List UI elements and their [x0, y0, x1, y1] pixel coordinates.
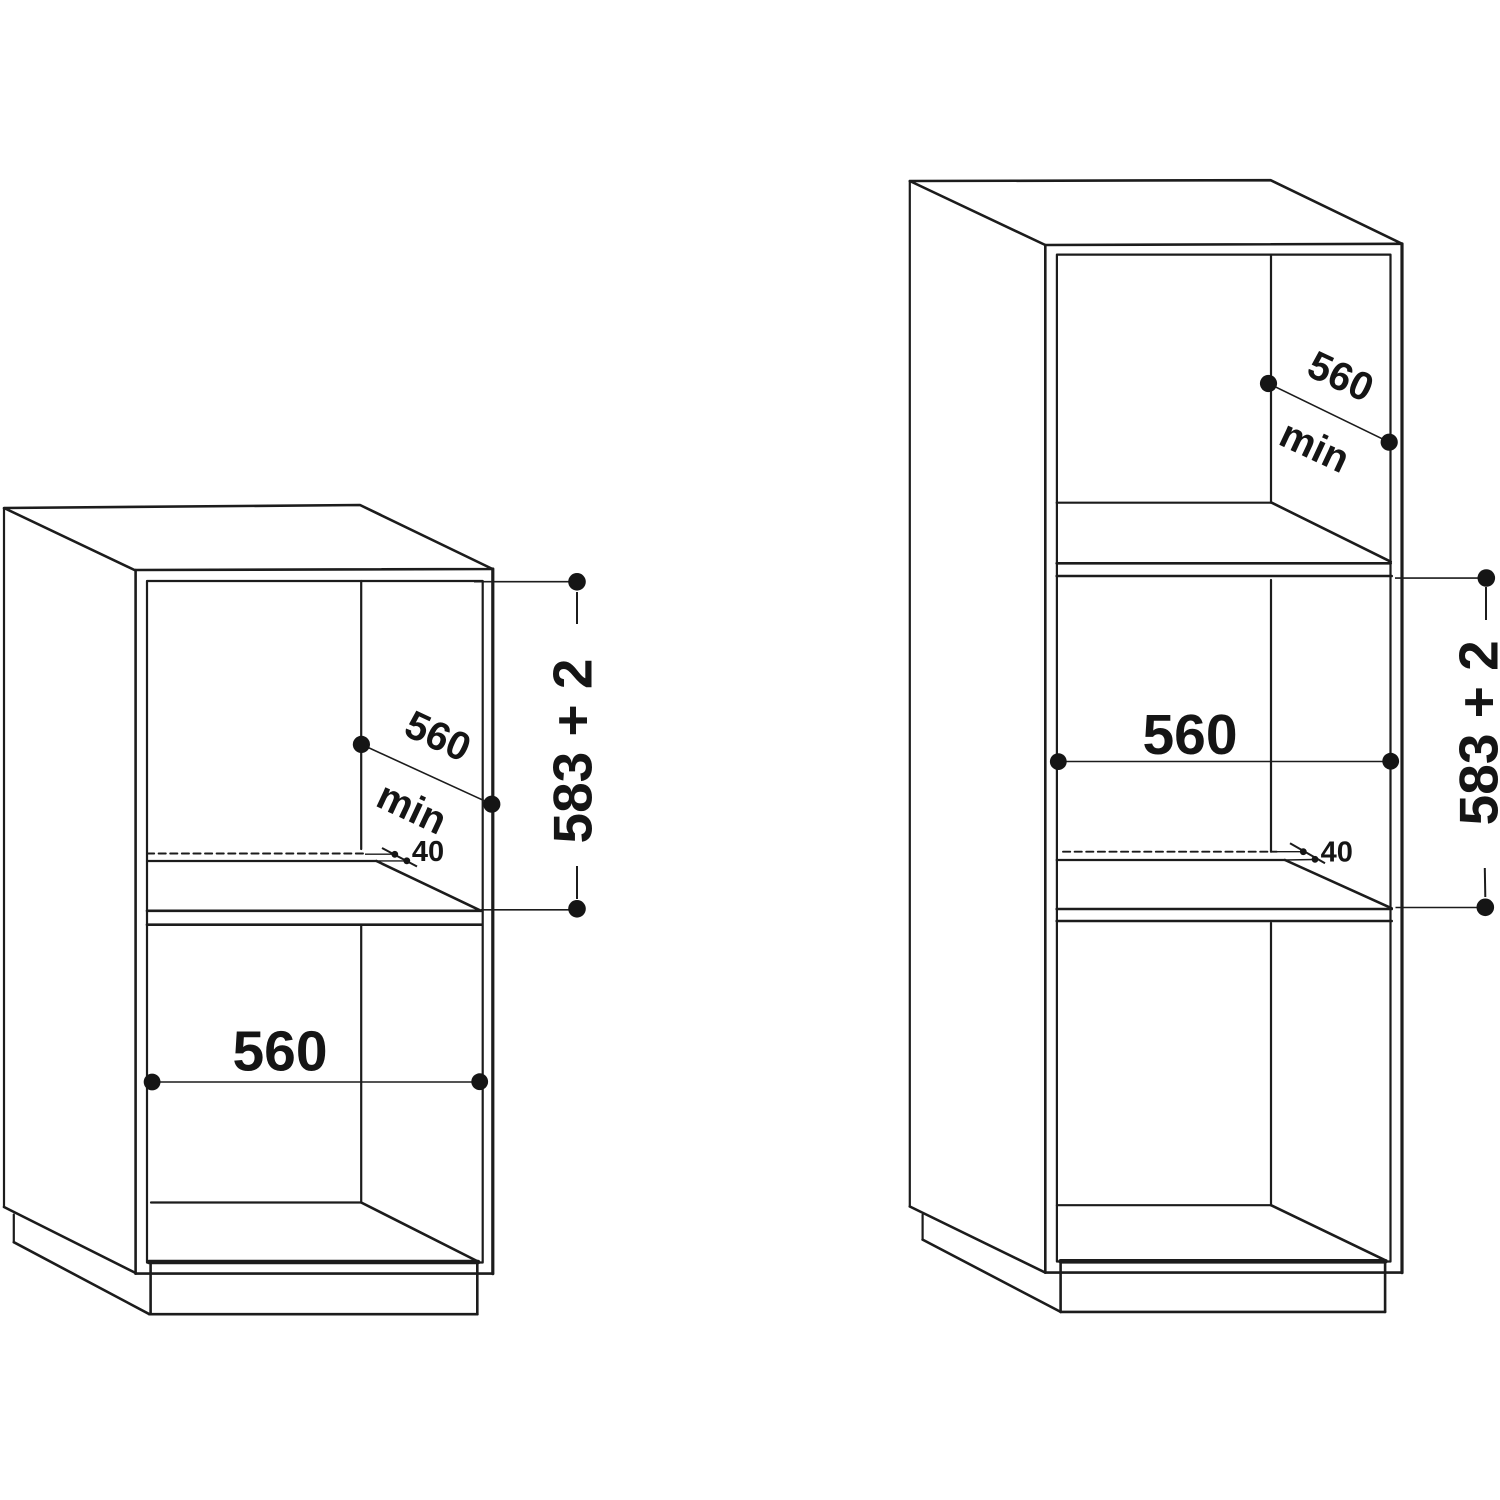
svg-text:583 + 2: 583 + 2 [1448, 640, 1500, 825]
svg-text:560: 560 [232, 1020, 327, 1084]
svg-text:40: 40 [412, 836, 444, 868]
svg-text:560: 560 [1142, 703, 1237, 767]
svg-text:40: 40 [1321, 837, 1353, 869]
svg-text:583 + 2: 583 + 2 [542, 658, 604, 843]
